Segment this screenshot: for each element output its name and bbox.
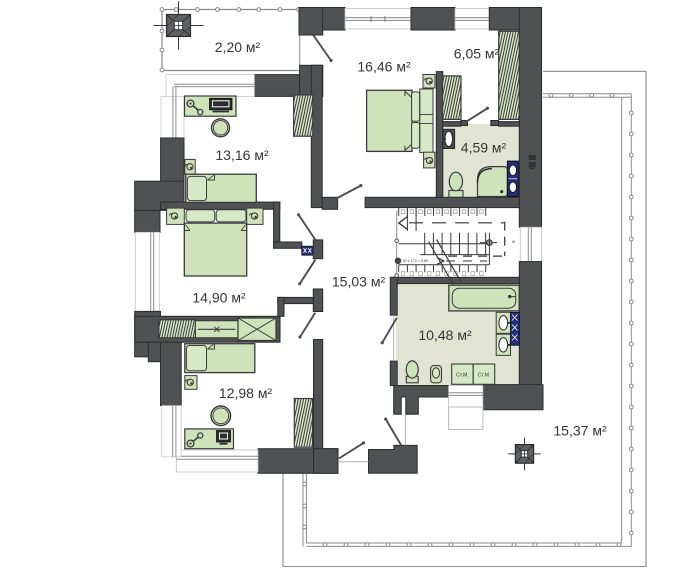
svg-text:15,03 м²: 15,03 м² bbox=[332, 274, 386, 290]
svg-text:15,37 м²: 15,37 м² bbox=[553, 423, 607, 439]
svg-text:13,16 м²: 13,16 м² bbox=[215, 147, 269, 163]
svg-text:10,48 м²: 10,48 м² bbox=[418, 327, 472, 343]
svg-text:14,90 м²: 14,90 м² bbox=[192, 290, 246, 306]
svg-text:Ст.М.: Ст.М. bbox=[456, 373, 469, 379]
svg-text:2,20 м²: 2,20 м² bbox=[215, 39, 261, 55]
svg-text:12,98 м²: 12,98 м² bbox=[219, 385, 273, 401]
svg-text:м: м bbox=[512, 239, 515, 244]
svg-text:6,05 м²: 6,05 м² bbox=[454, 46, 500, 62]
svg-text:Ст.М.: Ст.М. bbox=[478, 373, 491, 379]
svg-text:16,46 м²: 16,46 м² bbox=[357, 59, 411, 75]
svg-text:30 x 173 = 5,80: 30 x 173 = 5,80 bbox=[403, 259, 429, 263]
svg-text:4,59 м²: 4,59 м² bbox=[461, 139, 507, 155]
